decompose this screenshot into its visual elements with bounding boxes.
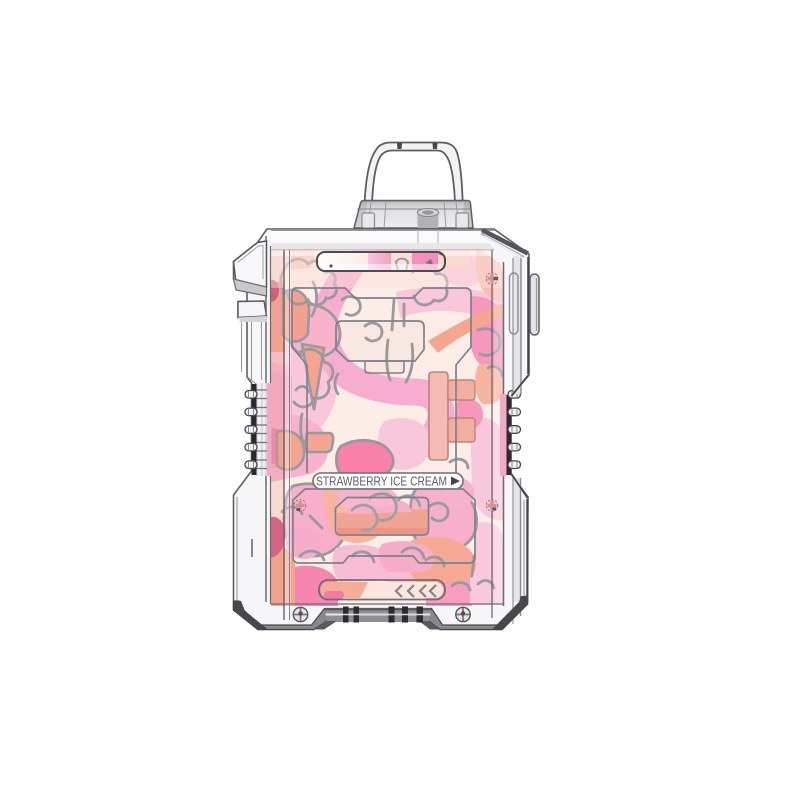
svg-text:STRAWBERRY ICE CREAM: STRAWBERRY ICE CREAM: [316, 474, 447, 489]
